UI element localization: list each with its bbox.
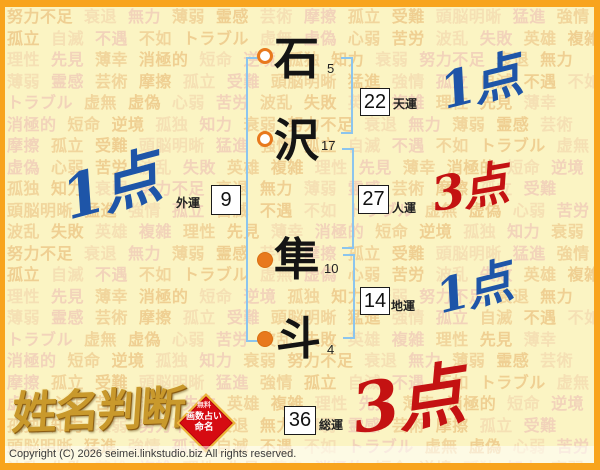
- chiun-value-box: 14: [360, 287, 390, 315]
- badge-line2: 画数占い: [177, 410, 231, 422]
- seimei-handan-result-page: 努力不足 衰退 無力 薄弱 霊感 芸術 摩擦 孤立 受難 頭脳明晰 猛進 強情 …: [0, 0, 600, 470]
- jinun-value-box: 27: [358, 185, 389, 214]
- stroke-count-4: 4: [327, 342, 334, 357]
- name-char-4: 斗: [276, 316, 321, 361]
- badge-line1: 無料: [177, 401, 231, 410]
- souun-value-box: 36: [284, 406, 316, 435]
- souun-score-stamp: 3点: [347, 360, 466, 444]
- jinun-label: 人運: [392, 199, 416, 216]
- jinun-bracket: [342, 148, 354, 249]
- chiun-bracket: [343, 254, 355, 339]
- jinun-score-stamp: 3点: [428, 160, 509, 219]
- name-char-2: 沢: [274, 118, 319, 163]
- seimei-handan-logo: 姓名判断: [10, 385, 185, 436]
- surname-marker-icon: [257, 48, 273, 64]
- stroke-count-1: 5: [327, 61, 334, 76]
- name-char-3: 隼: [274, 237, 319, 282]
- given-name-marker-icon: [257, 331, 273, 347]
- tenun-bracket: [341, 57, 353, 134]
- souun-label: 総運: [319, 416, 343, 433]
- gaiun-value-box: 9: [211, 185, 241, 215]
- surname-marker-icon: [257, 131, 273, 147]
- tenun-label: 天運: [393, 95, 417, 112]
- gaiun-label: 外運: [176, 194, 200, 211]
- tenun-value-box: 22: [360, 88, 390, 116]
- stroke-count-2: 17: [321, 138, 335, 153]
- stroke-count-3: 10: [324, 261, 338, 276]
- chiun-label: 地運: [391, 297, 415, 314]
- given-name-marker-icon: [257, 252, 273, 268]
- name-char-1: 石: [274, 36, 319, 81]
- badge-line3: 命名: [177, 422, 231, 434]
- free-naming-badge: 無料 画数占い 命名: [177, 394, 231, 448]
- copyright-text: Copyright (C) 2026 seimei.linkstudio.biz…: [5, 446, 594, 463]
- gaiun-bracket: [246, 57, 260, 342]
- copyright-bar: Copyright (C) 2026 seimei.linkstudio.biz…: [5, 446, 594, 463]
